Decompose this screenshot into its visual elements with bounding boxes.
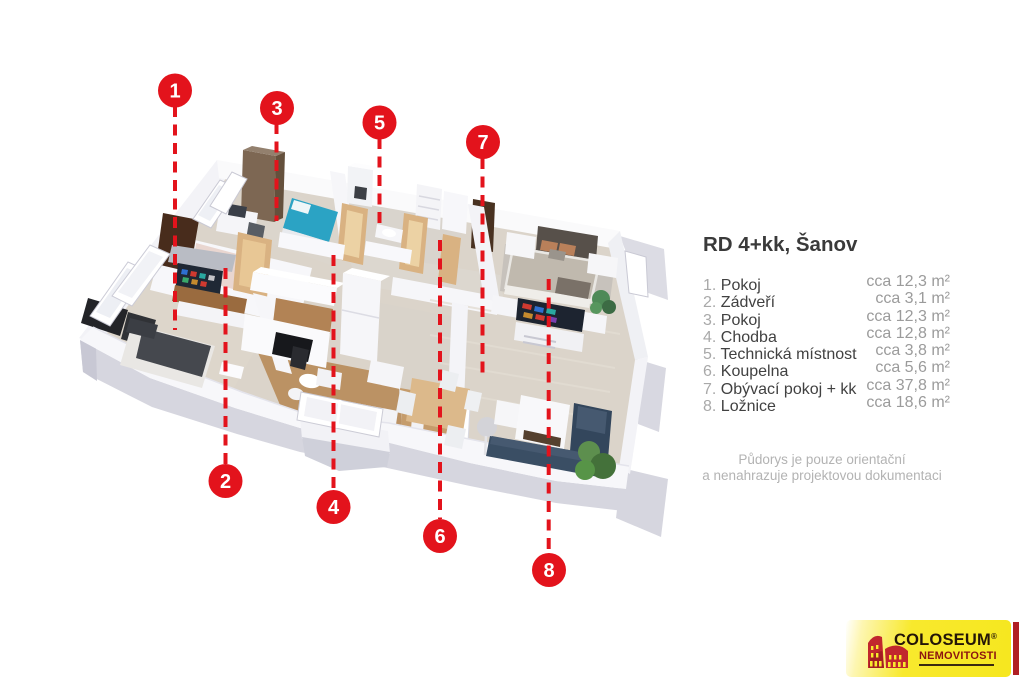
svg-text:2: 2 xyxy=(220,471,231,493)
svg-text:1: 1 xyxy=(169,81,180,103)
svg-text:7: 7 xyxy=(477,132,488,154)
svg-text:3: 3 xyxy=(271,98,282,120)
svg-text:6: 6 xyxy=(434,526,445,548)
svg-text:5: 5 xyxy=(374,113,385,135)
svg-text:8: 8 xyxy=(543,560,554,582)
svg-text:4: 4 xyxy=(328,497,340,519)
